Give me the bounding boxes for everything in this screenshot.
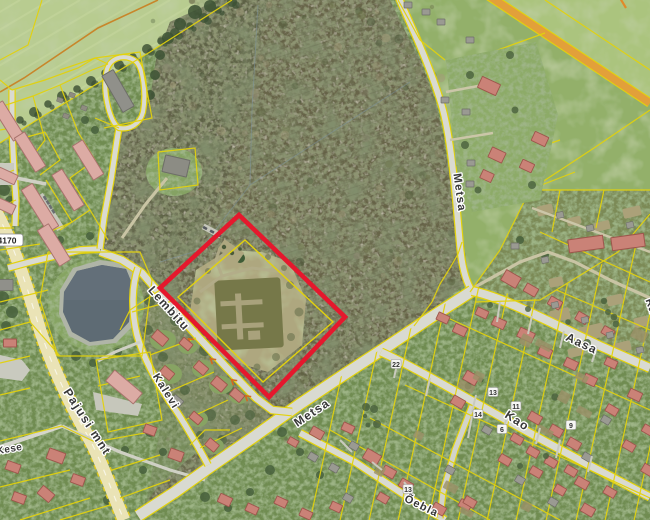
svg-text:6: 6	[500, 427, 504, 434]
svg-text:9: 9	[569, 423, 573, 430]
svg-text:13: 13	[404, 487, 412, 494]
svg-text:13: 13	[489, 390, 497, 397]
svg-text:11: 11	[512, 404, 520, 411]
svg-text:22: 22	[392, 362, 400, 369]
svg-text:14: 14	[474, 412, 482, 419]
svg-text:4170: 4170	[0, 236, 17, 246]
